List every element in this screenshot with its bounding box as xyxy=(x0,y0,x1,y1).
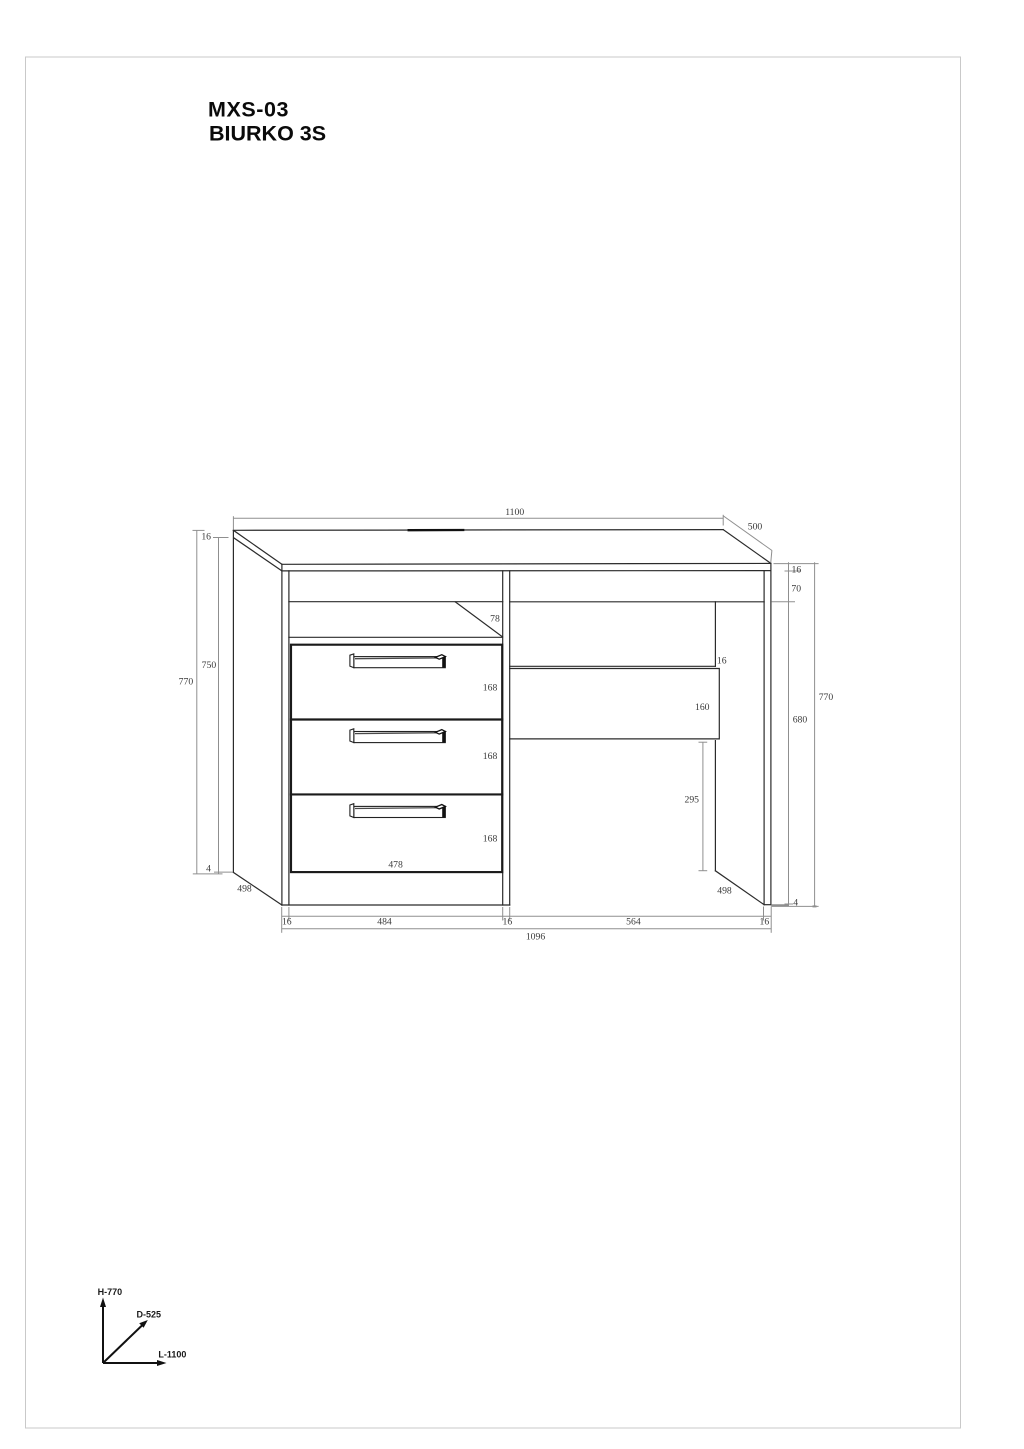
svg-text:680: 680 xyxy=(793,715,808,726)
svg-text:498: 498 xyxy=(717,886,732,897)
svg-text:1096: 1096 xyxy=(526,932,546,943)
svg-text:H-770: H-770 xyxy=(98,1287,123,1297)
svg-text:1100: 1100 xyxy=(505,507,524,518)
svg-text:4: 4 xyxy=(206,864,211,875)
svg-text:770: 770 xyxy=(819,692,834,703)
svg-text:16: 16 xyxy=(792,565,802,576)
svg-text:478: 478 xyxy=(388,860,403,871)
svg-text:78: 78 xyxy=(490,613,500,624)
svg-text:295: 295 xyxy=(684,795,699,806)
svg-text:4: 4 xyxy=(793,897,798,908)
svg-text:484: 484 xyxy=(377,917,392,928)
svg-text:498: 498 xyxy=(237,884,252,895)
svg-text:16: 16 xyxy=(717,656,727,667)
svg-text:L-1100: L-1100 xyxy=(158,1350,186,1360)
svg-text:16: 16 xyxy=(282,917,292,928)
svg-text:70: 70 xyxy=(791,583,801,594)
svg-text:BIURKO 3S: BIURKO 3S xyxy=(209,121,326,145)
svg-text:MXS-03: MXS-03 xyxy=(208,97,289,121)
svg-text:750: 750 xyxy=(202,660,217,671)
svg-text:500: 500 xyxy=(748,522,763,533)
svg-text:D-525: D-525 xyxy=(137,1310,162,1320)
svg-text:16: 16 xyxy=(503,917,513,928)
svg-text:16: 16 xyxy=(201,532,211,543)
svg-text:564: 564 xyxy=(626,917,641,928)
svg-text:16: 16 xyxy=(760,917,770,928)
svg-text:168: 168 xyxy=(483,751,498,762)
svg-text:168: 168 xyxy=(483,833,498,844)
svg-text:770: 770 xyxy=(179,677,194,688)
svg-text:160: 160 xyxy=(695,702,710,713)
svg-text:168: 168 xyxy=(483,682,498,693)
